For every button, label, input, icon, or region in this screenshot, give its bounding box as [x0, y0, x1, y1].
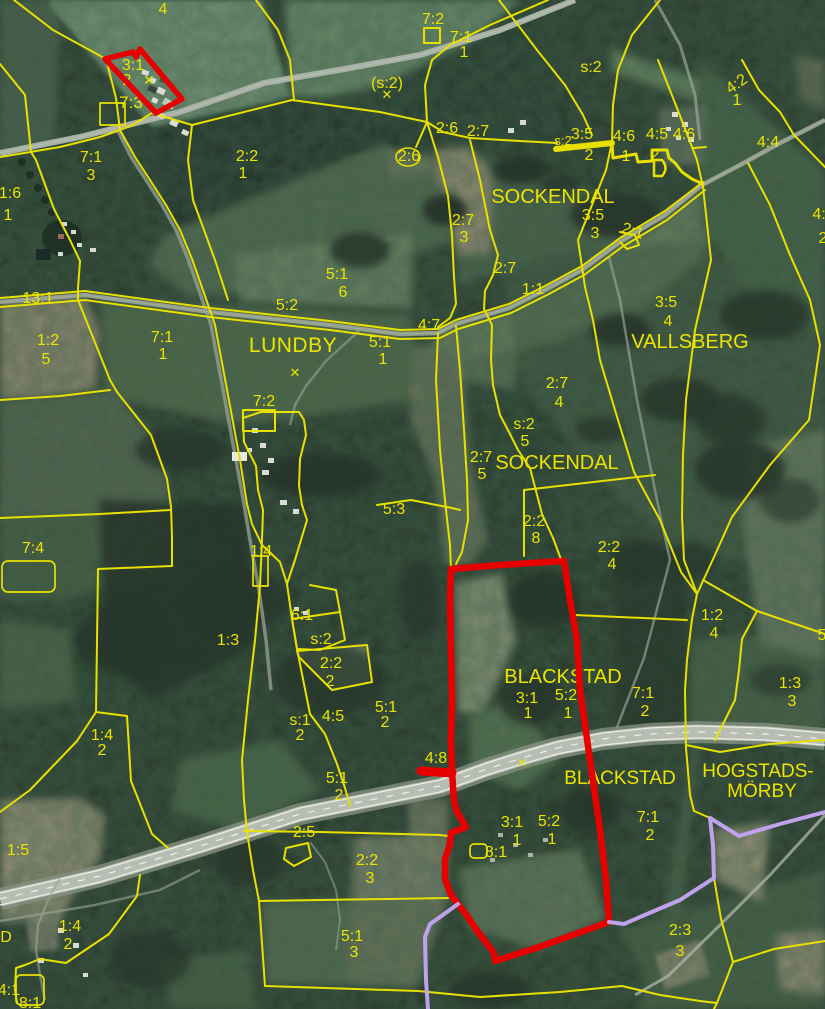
svg-text:5:1: 5:1: [326, 770, 348, 787]
svg-text:5: 5: [521, 433, 530, 450]
svg-text:4:6: 4:6: [673, 126, 695, 143]
svg-text:3: 3: [460, 229, 469, 246]
svg-text:7:1: 7:1: [632, 685, 654, 702]
svg-text:6: 6: [339, 284, 348, 301]
svg-text:MÖRBY: MÖRBY: [727, 781, 797, 802]
svg-text:4:7: 4:7: [418, 317, 440, 334]
svg-text:8:1: 8:1: [485, 844, 507, 861]
svg-text:1: 1: [460, 44, 469, 61]
svg-text:5:2: 5:2: [538, 813, 560, 830]
svg-text:1: 1: [513, 832, 522, 849]
svg-text:HOGSTADS-: HOGSTADS-: [702, 761, 814, 782]
svg-text:5:2: 5:2: [276, 297, 298, 314]
svg-text:5: 5: [478, 466, 487, 483]
svg-text:5: 5: [818, 627, 825, 644]
svg-text:2: 2: [585, 147, 594, 164]
svg-text:2: 2: [296, 727, 305, 744]
svg-text:4: 4: [555, 394, 564, 411]
svg-text:7:1: 7:1: [80, 149, 102, 166]
svg-text:s:2: s:2: [580, 59, 601, 76]
svg-text:4:4: 4:4: [757, 134, 779, 151]
svg-text:3: 3: [591, 225, 600, 242]
svg-text:1:2: 1:2: [701, 607, 723, 624]
svg-text:1:1: 1:1: [522, 281, 544, 298]
svg-text:2: 2: [98, 742, 107, 759]
svg-text:4: 4: [608, 556, 617, 573]
svg-text:1: 1: [524, 705, 533, 722]
svg-text:1: 1: [564, 705, 573, 722]
svg-text:4:6: 4:6: [613, 128, 635, 145]
svg-text:2:2: 2:2: [356, 852, 378, 869]
svg-text:2:7: 2:7: [467, 123, 489, 140]
svg-text:5:3: 5:3: [383, 501, 405, 518]
svg-text:5:1: 5:1: [326, 266, 348, 283]
svg-text:2:6: 2:6: [398, 148, 420, 165]
svg-text:2:7: 2:7: [546, 375, 568, 392]
svg-text:1: 1: [733, 92, 742, 109]
svg-text:BLACKSTAD: BLACKSTAD: [504, 666, 621, 688]
svg-text:4:5: 4:5: [322, 708, 344, 725]
svg-text:2:2: 2:2: [236, 148, 258, 165]
svg-text:2: 2: [326, 673, 335, 690]
svg-text:2:5: 2:5: [293, 824, 315, 841]
svg-text:4:: 4:: [812, 206, 825, 223]
svg-text:✕: ✕: [143, 72, 155, 88]
svg-text:3: 3: [676, 943, 685, 960]
svg-text:1:3: 1:3: [779, 675, 801, 692]
svg-text:4:8: 4:8: [425, 750, 447, 767]
svg-text:7:2: 7:2: [253, 393, 275, 410]
svg-text:1:5: 1:5: [7, 842, 29, 859]
svg-text:3: 3: [87, 167, 96, 184]
svg-text:1:3: 1:3: [217, 632, 239, 649]
svg-text:5:1: 5:1: [341, 928, 363, 945]
svg-text:1:2: 1:2: [37, 332, 59, 349]
svg-text:1:4: 1:4: [59, 918, 81, 935]
svg-text:4:5: 4:5: [646, 126, 668, 143]
svg-text:2: 2: [381, 714, 390, 731]
svg-text:✕: ✕: [290, 365, 301, 380]
svg-text:✕: ✕: [517, 756, 527, 770]
svg-text:3: 3: [788, 693, 797, 710]
svg-text:LUNDBY: LUNDBY: [249, 334, 337, 357]
svg-text:VALLSBERG: VALLSBERG: [631, 331, 748, 353]
svg-text:s:2: s:2: [513, 416, 534, 433]
svg-text:s:2: s:2: [554, 133, 571, 148]
svg-text:1: 1: [239, 165, 248, 182]
svg-text:2:2: 2:2: [320, 655, 342, 672]
svg-text:1: 1: [548, 831, 557, 848]
svg-text:2:2: 2:2: [598, 539, 620, 556]
svg-text:2:3: 2:3: [669, 922, 691, 939]
svg-text:2: 2: [641, 703, 650, 720]
svg-text:3:5: 3:5: [571, 126, 593, 143]
svg-text:5:2: 5:2: [555, 687, 577, 704]
svg-text:3:5: 3:5: [655, 294, 677, 311]
svg-text:8:1: 8:1: [19, 995, 41, 1009]
svg-text:2: 2: [64, 936, 73, 953]
svg-text:13:1: 13:1: [22, 290, 53, 307]
svg-text:SOCKENDAL: SOCKENDAL: [491, 186, 614, 208]
svg-text:2: 2: [335, 787, 344, 804]
svg-text:6:1: 6:1: [291, 607, 313, 624]
svg-text:1:4: 1:4: [250, 543, 272, 560]
svg-text:2: 2: [819, 230, 825, 247]
svg-text:7:1: 7:1: [637, 809, 659, 826]
svg-text:4: 4: [710, 625, 719, 642]
svg-text:✕: ✕: [382, 87, 393, 102]
svg-text:4: 4: [664, 313, 673, 330]
svg-text:2:6: 2:6: [436, 120, 458, 137]
svg-text:4:1: 4:1: [0, 982, 20, 999]
svg-text:8: 8: [532, 530, 541, 547]
svg-text:SOCKENDAL: SOCKENDAL: [495, 452, 618, 474]
svg-text:s:2: s:2: [310, 631, 331, 648]
svg-text:2:7: 2:7: [470, 449, 492, 466]
svg-text:5:1: 5:1: [369, 334, 391, 351]
svg-text:3:5: 3:5: [582, 207, 604, 224]
svg-text:1: 1: [159, 346, 168, 363]
svg-text:1: 1: [379, 351, 388, 368]
svg-text:7:1: 7:1: [151, 329, 173, 346]
svg-text:2:2: 2:2: [523, 513, 545, 530]
svg-text:1:6: 1:6: [0, 185, 21, 202]
svg-text:2: 2: [646, 827, 655, 844]
svg-text:7:4: 7:4: [22, 540, 44, 557]
svg-text:1: 1: [4, 207, 13, 224]
svg-text:2:7: 2:7: [494, 260, 516, 277]
svg-text:1: 1: [622, 148, 631, 165]
svg-text:7:2: 7:2: [422, 11, 444, 28]
svg-text:3:1: 3:1: [501, 814, 523, 831]
svg-text:4: 4: [159, 1, 168, 18]
svg-text:5: 5: [42, 351, 51, 368]
svg-text:BLACKSTAD: BLACKSTAD: [564, 768, 676, 789]
svg-text:3: 3: [366, 870, 375, 887]
svg-text:2:7: 2:7: [452, 212, 474, 229]
svg-text:3: 3: [350, 944, 359, 961]
svg-text:2: 2: [651, 147, 660, 164]
svg-text:D: D: [0, 929, 12, 946]
